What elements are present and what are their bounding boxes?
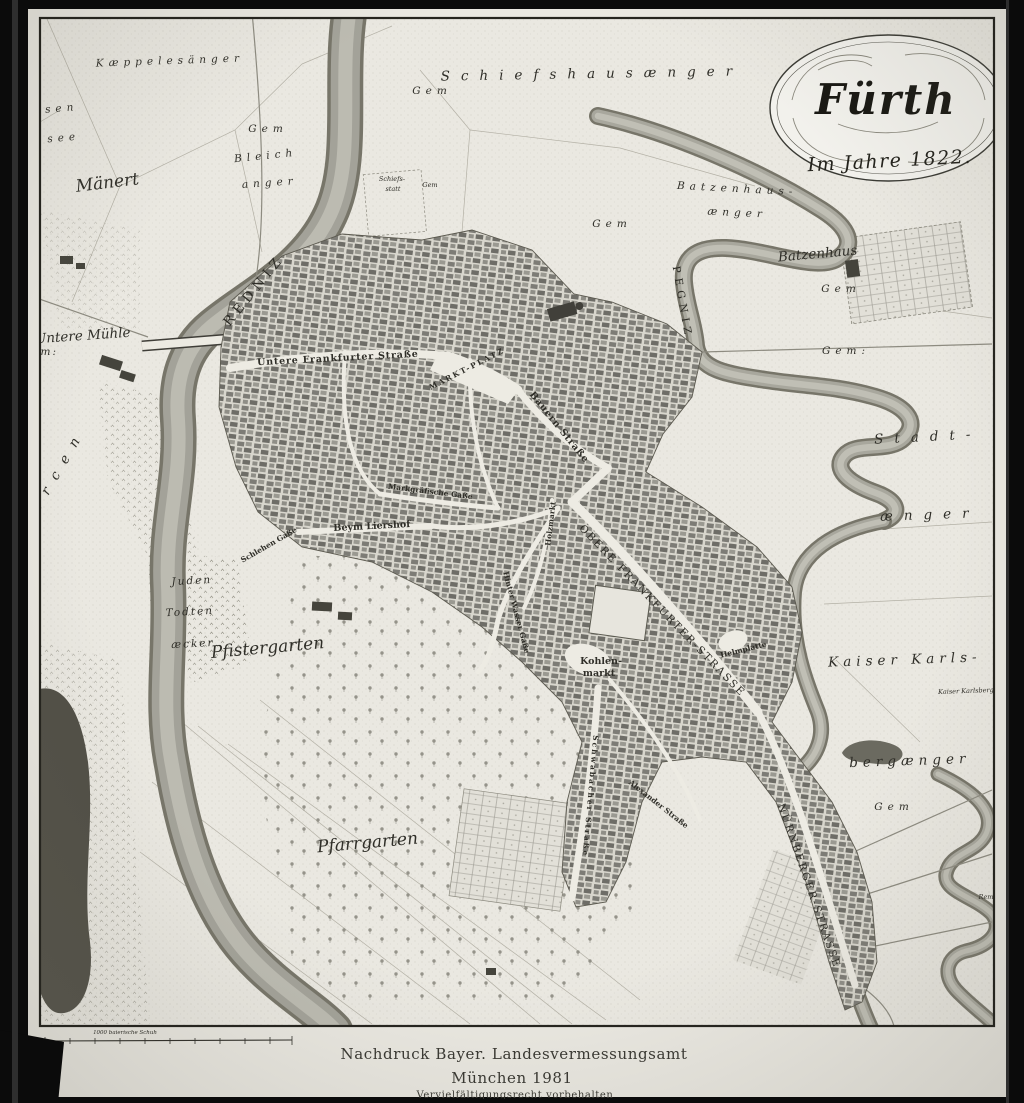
imprint-line2: München 1981	[451, 1069, 572, 1087]
imprint-line1: Nachdruck Bayer. Landesvermessungsamt	[341, 1045, 688, 1063]
scale-bar-label: 1000 baierische Schuh	[93, 1030, 157, 1036]
photo-vignette	[28, 9, 1006, 1097]
historic-map-scan: KæppelesängerBimsenseeMänertGemBleichang…	[0, 0, 1024, 1103]
